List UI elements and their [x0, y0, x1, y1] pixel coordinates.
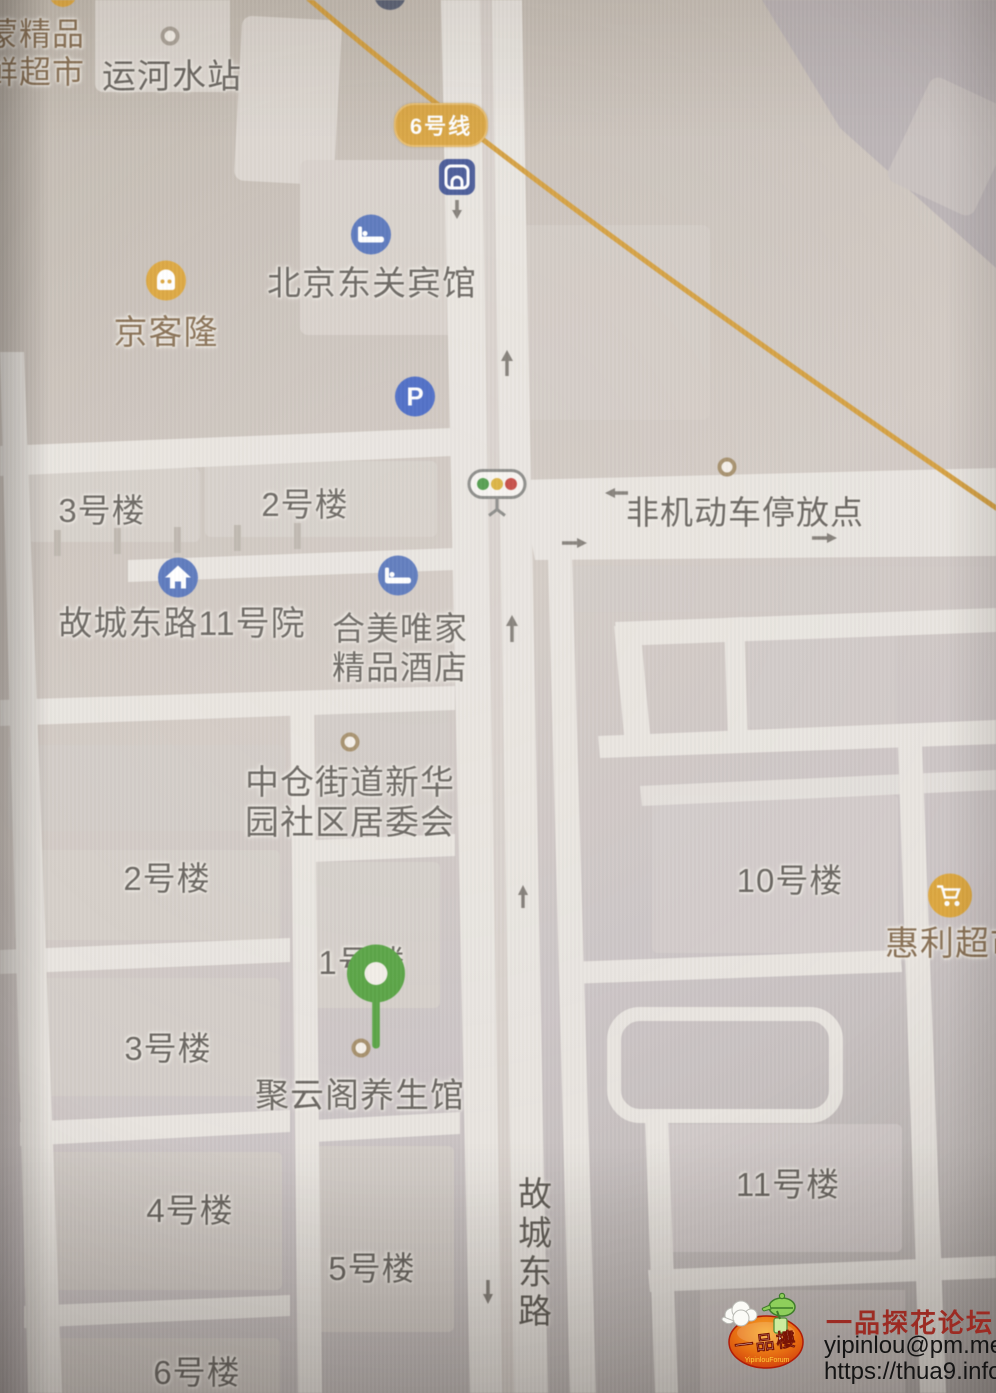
subway-logo-glyph: [439, 159, 475, 195]
poi-dot: [718, 458, 737, 477]
watermark-logo-subtext: YipinlouForum: [745, 1357, 790, 1364]
building-label-2-upper: 2号楼: [261, 486, 348, 525]
watermark-email: yipinlou@pm.me: [824, 1332, 996, 1360]
map-canvas[interactable]: [0, 0, 996, 1393]
building-label-6: 6号楼: [153, 1354, 240, 1393]
parking-icon[interactable]: P: [393, 375, 437, 424]
map-layer: 蒙精品 鲜超市 运河水站 6号线 北京东关宾馆: [0, 0, 996, 1393]
traffic-light-icon: [466, 468, 530, 527]
cart-icon[interactable]: [926, 872, 974, 925]
parking-letter: P: [406, 382, 423, 412]
hemei-line2: 精品酒店: [332, 649, 468, 688]
building-label-5: 5号楼: [328, 1250, 415, 1289]
poi-dot: [341, 733, 360, 752]
watermark-url: https://thua9.info: [824, 1358, 996, 1386]
poi-label-committee[interactable]: 中仓街道新华 园社区居委会: [245, 763, 455, 843]
building-label-11: 11号楼: [736, 1166, 840, 1205]
poi-label-dongguan-hotel[interactable]: 北京东关宾馆: [267, 264, 477, 304]
committee-line1: 中仓街道新华: [245, 763, 455, 803]
committee-line2: 园社区居委会: [245, 803, 455, 843]
poi-label-jingkelong[interactable]: 京客隆: [114, 313, 219, 353]
subway-line6-badge[interactable]: 6号线: [394, 103, 488, 147]
hotel-icon[interactable]: [349, 213, 393, 262]
building-label-4: 4号楼: [146, 1192, 233, 1231]
supermarket-line2: 鲜超市: [0, 54, 85, 92]
partial-poi-icon: [374, 0, 406, 10]
building-label-3-upper: 3号楼: [58, 492, 145, 531]
poi-label-non-motor-parking[interactable]: 非机动车停放点: [626, 494, 864, 533]
poi-dot: [161, 27, 180, 46]
building-label-10: 10号楼: [737, 862, 844, 901]
hotel-icon[interactable]: [376, 554, 420, 603]
location-pin[interactable]: [344, 945, 408, 1060]
watermark-logo: 一品樓 YipinlouForum: [716, 1292, 812, 1372]
poi-label-hemei-hotel[interactable]: 合美唯家 精品酒店: [332, 610, 468, 688]
supermarket-line1: 蒙精品: [0, 16, 85, 54]
home-icon[interactable]: [156, 556, 200, 605]
amap-map-view[interactable]: 蒙精品 鲜超市 运河水站 6号线 北京东关宾馆: [0, 0, 996, 1393]
poi-label-supermarket-cut[interactable]: 蒙精品 鲜超市: [0, 16, 85, 92]
partial-poi-icon: [49, 0, 77, 7]
road-label-gucheng-east-road: 故城东路: [508, 1176, 557, 1332]
poi-label-gucheng-11-yard[interactable]: 故城东路11号院: [58, 604, 305, 644]
hemei-line1: 合美唯家: [332, 610, 468, 649]
building-label-3-lower: 3号楼: [124, 1030, 211, 1069]
shop-icon[interactable]: [144, 259, 188, 308]
poi-label-juyunge-wellness[interactable]: 聚云阁养生馆: [255, 1076, 465, 1116]
poi-label-yunhe-water-station[interactable]: 运河水站: [102, 57, 242, 97]
building-label-2-lower: 2号楼: [123, 860, 210, 899]
subway-station-icon[interactable]: [439, 159, 475, 195]
poi-label-huili-supermarket[interactable]: 惠利超市: [885, 924, 996, 964]
